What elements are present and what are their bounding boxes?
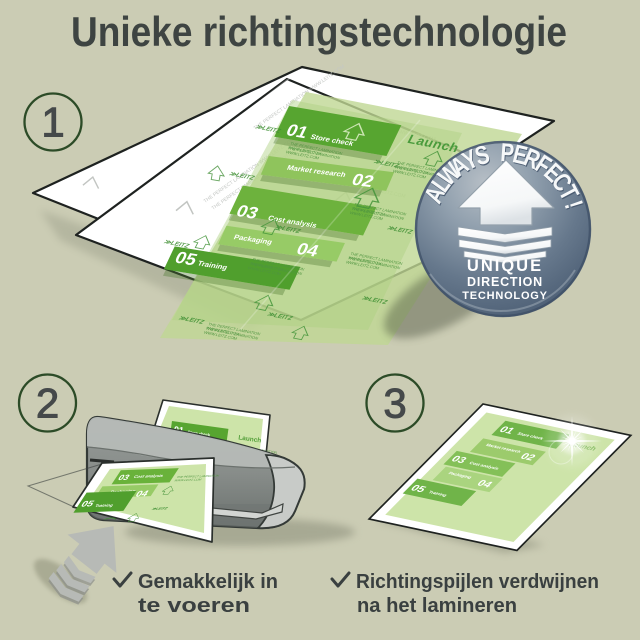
svg-text:Training: Training [94,503,114,508]
svg-text:DIRECTION: DIRECTION [467,275,543,289]
svg-text:te voeren: te voeren [138,594,250,617]
svg-text:TECHNOLOGY: TECHNOLOGY [462,290,548,302]
svg-text:2: 2 [36,380,59,427]
svg-text:Richtingspijlen verdwijnen: Richtingspijlen verdwijnen [356,570,599,593]
svg-text:Gemakkelijk in: Gemakkelijk in [138,570,278,593]
svg-text:3: 3 [383,380,406,427]
svg-text:Unieke richtingstechnologie: Unieke richtingstechnologie [71,8,567,55]
svg-text:UNIQUE: UNIQUE [467,257,543,275]
svg-text:na het lamineren: na het lamineren [357,594,517,617]
svg-text:1: 1 [41,99,64,146]
